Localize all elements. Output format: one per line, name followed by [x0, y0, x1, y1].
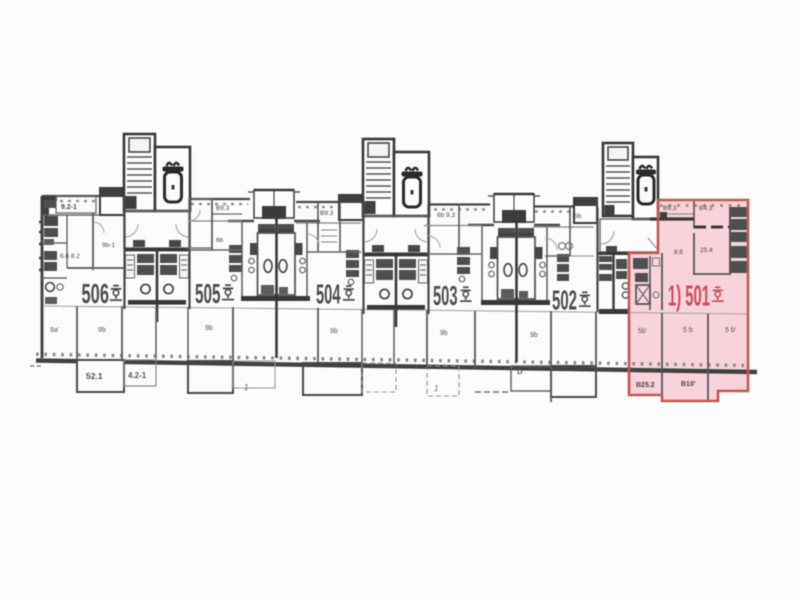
svg-text:503: 503 — [433, 280, 458, 311]
svg-text:504: 504 — [316, 279, 341, 310]
svg-text:B10': B10' — [681, 381, 696, 388]
svg-text:6b 9.3: 6b 9.3 — [437, 212, 455, 219]
svg-text:B9.3: B9.3 — [663, 205, 677, 212]
svg-text:9b-1: 9b-1 — [102, 242, 115, 249]
svg-text:4.2-1: 4.2-1 — [128, 371, 147, 380]
svg-text:9b: 9b — [530, 332, 538, 339]
svg-text:505: 505 — [195, 278, 221, 309]
svg-text:1) 501: 1) 501 — [668, 281, 710, 313]
svg-text:B4.3: B4.3 — [699, 205, 713, 212]
svg-text:25.4: 25.4 — [700, 247, 713, 254]
svg-text:D: D — [517, 367, 523, 376]
svg-text:5 b': 5 b' — [725, 327, 736, 334]
svg-text:B25.2: B25.2 — [636, 382, 655, 389]
svg-text:9b: 9b — [440, 330, 448, 337]
svg-text:1: 1 — [434, 384, 438, 393]
svg-text:52.1: 52.1 — [86, 371, 103, 381]
svg-text:9.2-1: 9.2-1 — [61, 204, 77, 211]
svg-text:8.6: 8.6 — [674, 249, 683, 256]
svg-text:6b: 6b — [574, 213, 582, 220]
svg-text:9a': 9a' — [50, 327, 59, 334]
svg-text:6.6 8.2: 6.6 8.2 — [60, 253, 80, 260]
svg-text:9b: 9b — [205, 325, 213, 332]
svg-text:506: 506 — [82, 278, 110, 309]
svg-text:6b: 6b — [216, 237, 224, 244]
svg-text:9b: 9b — [98, 327, 106, 334]
svg-text:502: 502 — [552, 285, 577, 316]
svg-text:B9.3: B9.3 — [216, 205, 230, 212]
svg-text:5 b: 5 b — [683, 327, 693, 334]
svg-text:9b: 9b — [330, 328, 338, 335]
svg-text:B9.3: B9.3 — [320, 210, 334, 217]
svg-text:5b': 5b' — [638, 328, 647, 335]
svg-text:1: 1 — [244, 383, 248, 392]
